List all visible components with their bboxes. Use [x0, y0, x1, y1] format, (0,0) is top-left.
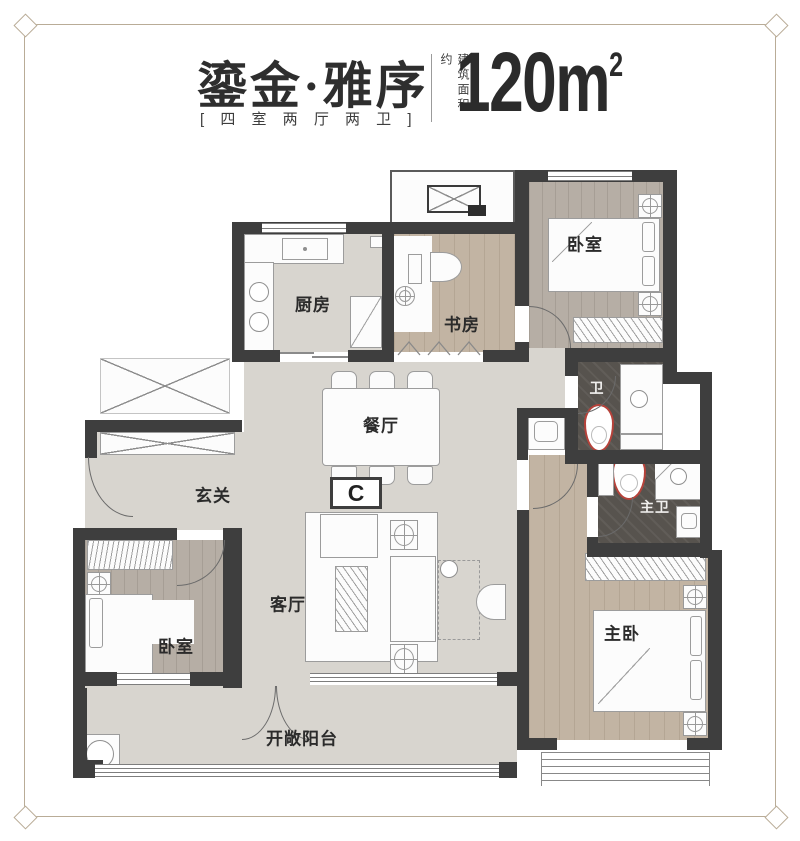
wall — [515, 342, 529, 362]
pillow — [690, 660, 702, 700]
wall — [73, 528, 85, 690]
wall — [565, 450, 712, 464]
kitchen-counter-left — [244, 262, 274, 354]
folding-door-icon — [396, 340, 484, 356]
wardrobe — [87, 540, 173, 570]
kitchen-sliding-door — [280, 352, 314, 354]
window — [117, 673, 190, 685]
wall — [517, 510, 529, 687]
shower-drain — [630, 390, 648, 408]
pillow — [89, 598, 103, 648]
sink-faucet — [303, 247, 307, 251]
wall — [517, 687, 529, 750]
tv-icon — [476, 584, 506, 620]
armchair — [390, 556, 436, 642]
plant-icon — [440, 560, 458, 578]
wall — [700, 384, 712, 558]
wall — [223, 528, 242, 688]
unit-type-badge: C — [330, 477, 382, 509]
wall — [687, 738, 722, 750]
room-label-bedroom-top: 卧室 — [567, 231, 603, 256]
bath-cabinet — [598, 462, 614, 496]
wall — [587, 543, 712, 557]
bay-window — [541, 752, 710, 786]
sofa-back-cushion — [320, 514, 378, 558]
wall — [565, 362, 578, 376]
dining-chair — [407, 466, 433, 485]
equipment-platform — [100, 358, 230, 414]
wall — [232, 222, 244, 362]
wardrobe — [573, 317, 663, 343]
room-label-balcony: 开敞阳台 — [266, 725, 338, 750]
room-label-foyer: 玄关 — [195, 482, 231, 507]
nightstand — [683, 585, 707, 609]
wall — [382, 234, 394, 350]
area-superscript: 2 — [609, 46, 623, 84]
side-table-lamp — [390, 644, 418, 674]
room-label-master-bedroom: 主卧 — [604, 620, 640, 645]
room-label-master-bath: 主卫 — [640, 497, 670, 517]
wall — [73, 528, 177, 540]
room-label-dining: 餐厅 — [363, 412, 399, 437]
kitchen-sliding-door — [312, 356, 348, 358]
room-label-kitchen: 厨房 — [295, 291, 331, 316]
wall — [348, 350, 394, 362]
wardrobe — [585, 553, 706, 581]
shoe-cabinet — [100, 432, 235, 455]
side-table-lamp — [390, 520, 418, 550]
shower-drain — [670, 468, 687, 485]
wall — [517, 408, 528, 460]
nightstand — [638, 194, 662, 218]
wall — [565, 348, 677, 362]
pillow — [642, 256, 655, 286]
plan-subtitle: [ 四 室 两 厅 两 卫 ] — [200, 108, 418, 129]
wall — [190, 672, 242, 686]
study-desk — [408, 254, 422, 284]
wall — [73, 672, 117, 686]
nightstand — [683, 712, 707, 736]
room-label-bedroom-left: 卧室 — [158, 633, 194, 658]
wall — [515, 170, 529, 306]
room-label-bath: 卫 — [590, 378, 605, 398]
balcony-window — [95, 764, 499, 778]
study-cabinet — [394, 236, 432, 332]
bath-basin — [620, 434, 663, 450]
stove-burner — [249, 312, 269, 332]
blanket-fold — [598, 648, 650, 704]
pillow — [690, 616, 702, 656]
wall — [708, 550, 722, 750]
window — [262, 223, 346, 233]
floorplan-page: 鎏金·雅序 [ 四 室 两 厅 两 卫 ] 建筑面积约 120m2 — [0, 0, 800, 841]
pillow — [642, 222, 655, 252]
wall — [85, 420, 97, 458]
header-divider — [431, 54, 432, 122]
master-basin-bowl — [681, 513, 697, 529]
room-label-study: 书房 — [444, 311, 480, 336]
coffee-table — [335, 566, 368, 632]
wall — [565, 414, 578, 450]
elevator-detail — [468, 205, 486, 216]
stove-burner — [249, 282, 269, 302]
wall — [232, 350, 280, 362]
area-number: 120m — [456, 35, 609, 129]
wall — [587, 464, 598, 497]
window — [548, 171, 632, 181]
window — [310, 673, 497, 685]
room-label-living: 客厅 — [270, 591, 306, 616]
area-value: 120m2 — [456, 34, 623, 131]
nightstand — [87, 572, 111, 596]
fridge-icon — [350, 296, 382, 348]
study-chair — [395, 286, 415, 306]
vanity-sink — [534, 421, 558, 442]
wall — [85, 420, 242, 432]
nightstand — [638, 292, 662, 316]
wall — [499, 762, 517, 778]
wall — [497, 672, 517, 686]
wall — [663, 372, 712, 384]
wall — [529, 738, 557, 750]
